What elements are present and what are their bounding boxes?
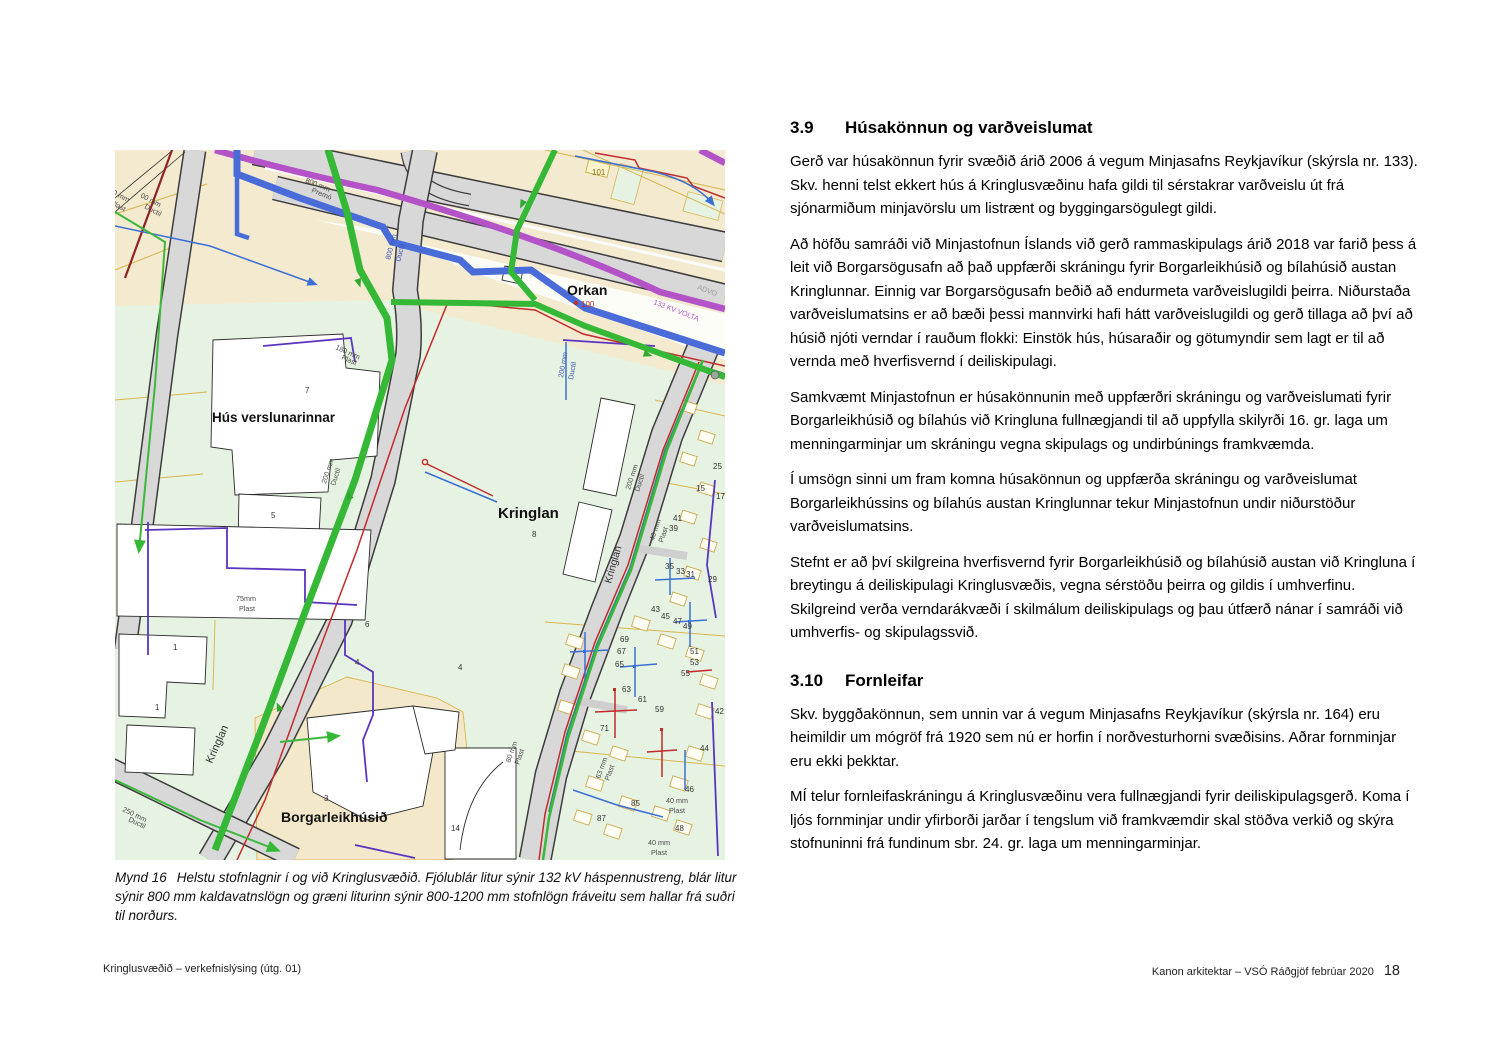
parcel-number: 46: [685, 785, 694, 794]
utility-map: 800 mmPremó0 mmPlast00 mmDuctil180 mmPla…: [115, 150, 725, 860]
parcel-number: 100: [581, 300, 595, 309]
parcel-number: 49: [683, 622, 692, 631]
parcel-number: 35: [665, 562, 674, 571]
parcel-number: 69: [620, 635, 629, 644]
paragraph: Að höfðu samráði við Minjastofnun Ísland…: [790, 233, 1418, 374]
section-number: 3.9: [790, 118, 845, 138]
parcel-number: 45: [661, 612, 670, 621]
parcel-number: 25: [713, 462, 722, 471]
parcel-number: 29: [708, 575, 717, 584]
parcel-number: 1: [155, 703, 160, 712]
parcel-number: 47: [673, 617, 682, 626]
parcel-number: 87: [597, 814, 606, 823]
parcel-number: 15: [696, 484, 705, 493]
parcel-number: 7: [305, 386, 310, 395]
paragraph: Stefnt er að því skilgreina hverfisvernd…: [790, 551, 1418, 645]
footer-right: Kanon arkitektar – VSÓ Ráðgjöf febrúar 2…: [1152, 963, 1400, 979]
paragraph: MÍ telur fornleifaskráningu á Kringlusvæ…: [790, 785, 1418, 856]
paragraph: Gerð var húsakönnun fyrir svæðið árið 20…: [790, 150, 1418, 221]
document-page: { "figure": { "caption_label": "Mynd 16"…: [0, 0, 1500, 1061]
parcel-number: 71: [600, 724, 609, 733]
figure-caption: Mynd 16Helstu stofnlagnir í og við Kring…: [115, 868, 747, 925]
parcel-number: 65: [615, 660, 624, 669]
parcel-number: 3: [324, 794, 329, 803]
paragraph: Í umsögn sinni um fram komna húsakönnun …: [790, 468, 1418, 539]
pipe-label: Plast: [239, 604, 255, 613]
pipe-label: 75mm: [236, 594, 256, 603]
utility-map-figure: 800 mmPremó0 mmPlast00 mmDuctil180 mmPla…: [115, 150, 725, 860]
paragraph: Samkvæmt Minjastofnun er húsakönnunin me…: [790, 386, 1418, 457]
parcel-number: 4: [458, 663, 463, 672]
parcel-number: 1: [173, 643, 178, 652]
parcel-number: 55: [681, 669, 690, 678]
figure-caption-text: Helstu stofnlagnir í og við Kringlusvæði…: [115, 870, 737, 923]
parcel-number: 42: [715, 707, 724, 716]
pipe-label: Plast: [651, 848, 667, 857]
section-title: Fornleifar: [845, 671, 923, 691]
parcel-number: 51: [690, 647, 699, 656]
section-number: 3.10: [790, 671, 845, 691]
section-title: Húsakönnun og varðveislumat: [845, 118, 1093, 138]
parcel-number: 44: [700, 744, 709, 753]
parcel-number: 31: [686, 570, 695, 579]
section-heading-3-9: 3.9 Húsakönnun og varðveislumat: [790, 118, 1418, 138]
paragraph: Skv. byggðakönnun, sem unnin var á vegum…: [790, 703, 1418, 774]
parcel-number: 6: [365, 620, 370, 629]
parcel-number: 39: [669, 524, 678, 533]
parcel-number: 67: [617, 647, 626, 656]
parcel-number: 8: [532, 530, 537, 539]
section-heading-3-10: 3.10 Fornleifar: [790, 671, 1418, 691]
parcel-number: 59: [655, 705, 664, 714]
parcel-number: 101: [592, 168, 606, 177]
parcel-number: 4: [355, 658, 360, 667]
place-label: Orkan: [567, 282, 607, 298]
pipe-label: Plast: [669, 806, 685, 815]
pipe-label: 40 mm: [666, 796, 688, 805]
text-column: 3.9 Húsakönnun og varðveislumat Gerð var…: [790, 118, 1418, 868]
parcel-number: 17: [716, 492, 725, 501]
parcel-number: 14: [451, 824, 460, 833]
footer-left: Kringlusvæðið – verkefnislýsing (útg. 01…: [103, 963, 301, 975]
parcel-number: 43: [651, 605, 660, 614]
parcel-number: 85: [631, 799, 640, 808]
parcel-number: 5: [271, 511, 276, 520]
pipe-label: 40 mm: [648, 838, 670, 847]
parcel-number: 48: [675, 824, 684, 833]
parcel-number: 53: [690, 658, 699, 667]
footer-credit: Kanon arkitektar – VSÓ Ráðgjöf febrúar 2…: [1152, 966, 1374, 978]
parcel-number: 33: [676, 567, 685, 576]
place-label: Hús verslunarinnar: [212, 410, 336, 425]
parcel-number: 41: [673, 514, 682, 523]
parcel-number: 61: [638, 695, 647, 704]
page-number: 18: [1384, 963, 1400, 979]
figure-caption-label: Mynd 16: [115, 870, 167, 885]
parcel-number: 63: [622, 685, 631, 694]
place-label: Borgarleikhúsið: [281, 809, 388, 825]
place-label: Kringlan: [498, 505, 559, 522]
